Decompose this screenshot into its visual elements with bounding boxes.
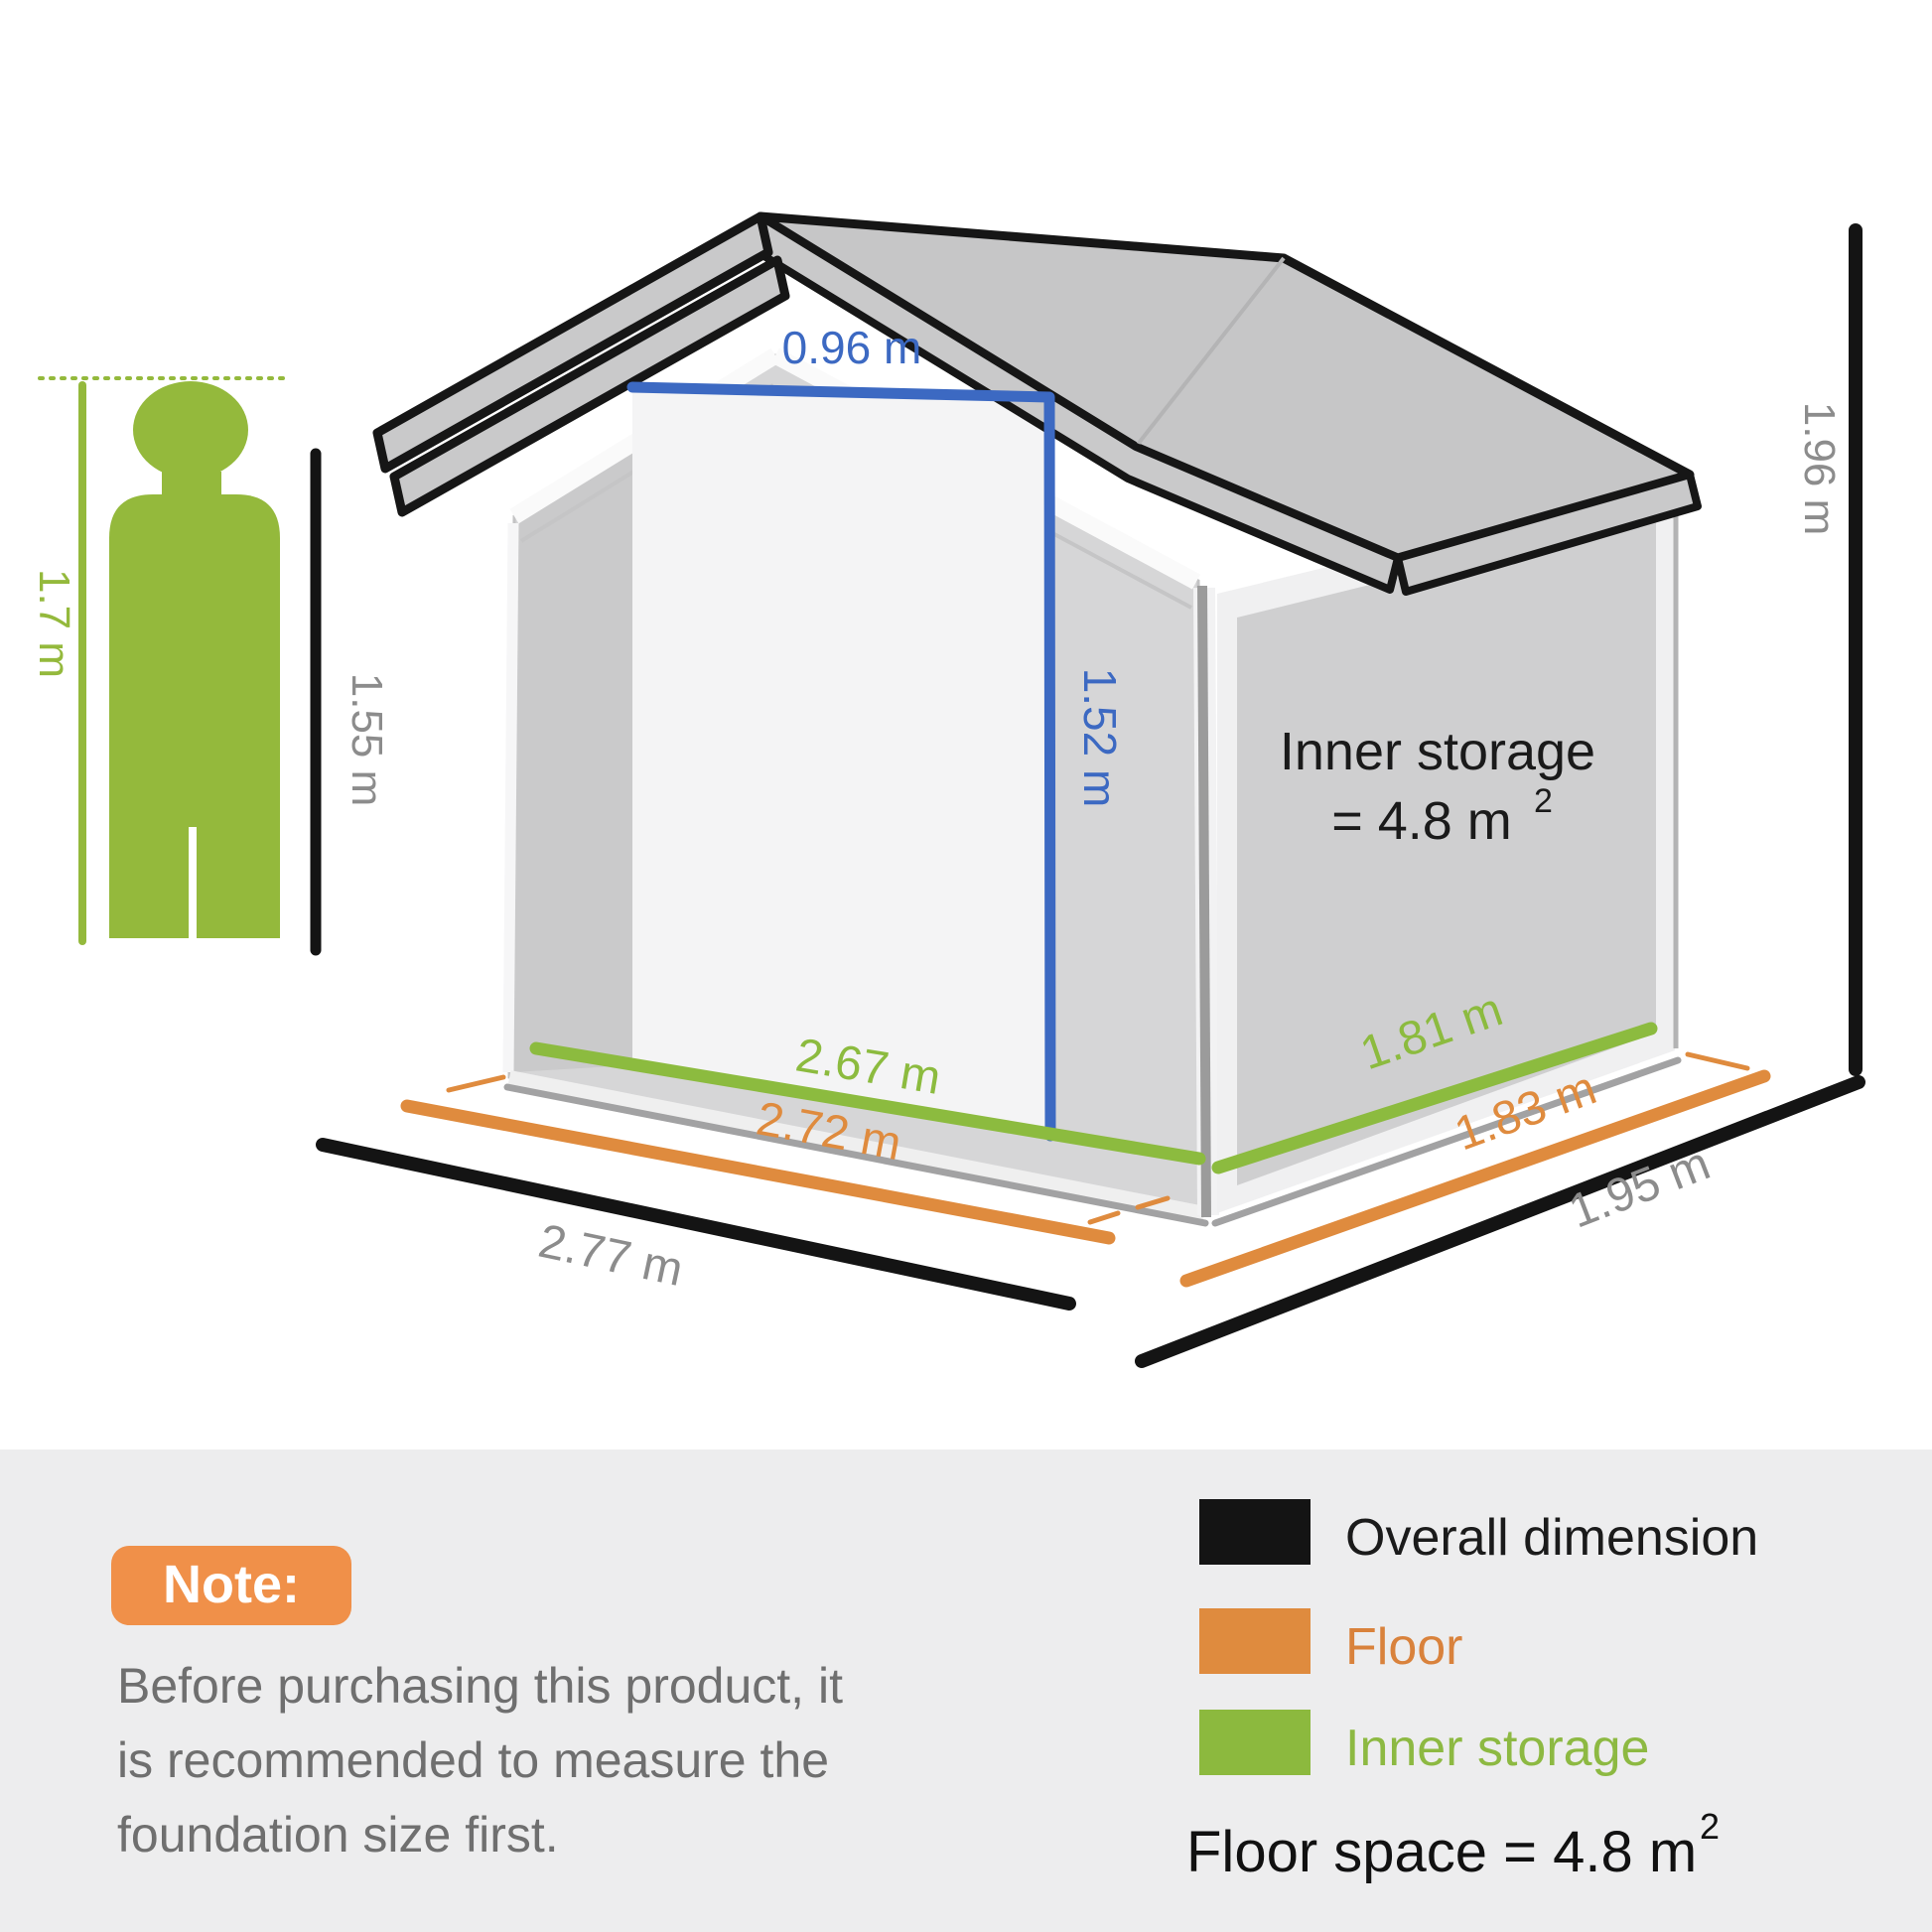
overall-height-label: 1.96 m <box>1795 402 1844 536</box>
floor-space-superscript: 2 <box>1700 1806 1720 1847</box>
legend-swatch-inner <box>1199 1710 1311 1775</box>
legend-label-overall: Overall dimension <box>1345 1509 1758 1567</box>
shed-front-left-panel <box>513 452 632 1072</box>
legend-swatch-overall <box>1199 1499 1311 1565</box>
shed-door <box>632 387 1050 1136</box>
note-line-2: is recommended to measure the <box>117 1732 829 1788</box>
note-badge-label: Note: <box>163 1555 300 1614</box>
legend-label-floor: Floor <box>1345 1618 1462 1676</box>
door-height-label: 1.52 m <box>1074 668 1126 808</box>
shed-dimension-diagram: 1.7 m 1.55 m <box>0 0 1932 1932</box>
legend-label-inner: Inner storage <box>1345 1720 1649 1777</box>
person-legs-gap <box>189 827 197 938</box>
inner-storage-superscript: 2 <box>1534 782 1553 820</box>
diagram-canvas: 1.7 m 1.55 m <box>0 0 1932 1932</box>
floor-space-label: Floor space = 4.8 m <box>1186 1820 1697 1884</box>
inner-storage-title: Inner storage <box>1280 722 1595 781</box>
note-line-1: Before purchasing this product, it <box>117 1658 843 1714</box>
wall-height-label: 1.55 m <box>343 673 391 807</box>
corner-post <box>1202 586 1206 1217</box>
note-line-3: foundation size first. <box>117 1807 559 1863</box>
person-head <box>133 381 248 479</box>
person-height-label: 1.7 m <box>30 569 78 678</box>
door-width-label: 0.96 m <box>782 322 922 373</box>
legend-swatch-floor <box>1199 1608 1311 1674</box>
inner-storage-value: = 4.8 m <box>1331 791 1512 851</box>
front-left-edge-highlight <box>508 523 513 1072</box>
